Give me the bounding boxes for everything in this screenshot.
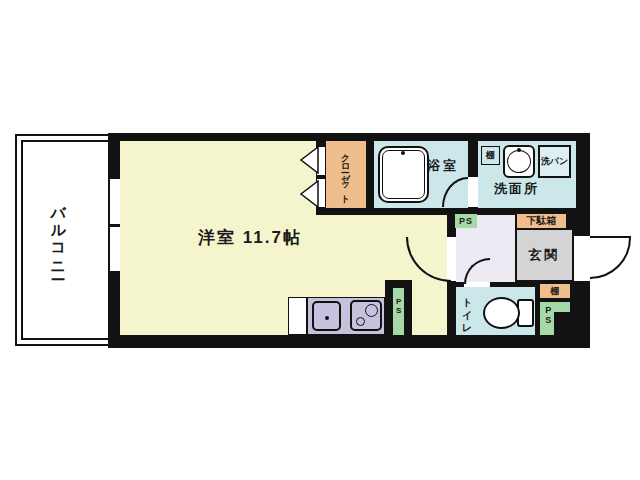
balcony-label: バルコニー: [50, 195, 67, 273]
entrance-shelf-label: 棚: [551, 286, 560, 296]
kitchen-sink-drain-icon: [325, 316, 329, 320]
washing-machine-pan: 洗パン: [538, 145, 571, 178]
bathroom-label: 浴室: [427, 159, 459, 174]
washbasin-bowl: [507, 150, 531, 173]
bathtub-inner: [382, 150, 425, 199]
entrance-shelf: 棚: [540, 284, 570, 298]
bathtub-drain-icon: [401, 151, 405, 155]
entrance: 玄関: [517, 230, 572, 280]
closet-door-track-upper: [316, 146, 326, 176]
stove-burner-small-icon: [356, 317, 365, 326]
shoe-cabinet: 下駄箱: [517, 214, 566, 228]
closet-label: クローゼット: [340, 147, 350, 198]
ps-hall-label: PS: [459, 216, 473, 226]
washroom-label: 洗面所: [494, 182, 539, 197]
bathroom-door-opening: [468, 177, 478, 207]
kitchen-sink: [312, 301, 341, 331]
ps-toilet-notch: [554, 312, 570, 335]
main-room-label-text: 洋室 11.7帖: [198, 228, 302, 248]
entrance-label: 玄関: [529, 248, 561, 263]
toilet-bowl: [483, 297, 520, 329]
entrance-door-arc: [590, 238, 631, 279]
ps-kitchen-label: PS: [394, 297, 403, 315]
toilet-label: トイレ: [461, 291, 473, 328]
main-room-label: 洋室 11.7帖: [150, 228, 350, 248]
main-room-upper: [120, 141, 316, 215]
kitchen-counter: [307, 297, 385, 335]
washbasin-faucet-icon: [517, 148, 521, 152]
washroom-shelf-label: 棚: [486, 150, 495, 160]
floor-plan: バルコニー 洋室 11.7帖 クローゼット 浴室 棚 洗パン 洗面所 PS: [0, 0, 640, 480]
ps-hall: PS: [455, 214, 477, 228]
stove-burner-large-icon: [365, 304, 378, 317]
washroom-shelf: 棚: [481, 146, 500, 165]
kitchen-appliance-space: [288, 297, 307, 335]
entrance-door-opening: [574, 236, 590, 281]
bathtub: [378, 146, 429, 203]
shoe-cabinet-label: 下駄箱: [527, 215, 557, 227]
washbasin: [503, 145, 535, 178]
closet-door-track-lower: [316, 178, 326, 208]
washing-pan-label: 洗パン: [541, 156, 568, 166]
ps-toilet-label: PS: [543, 305, 553, 325]
stove: [350, 300, 382, 331]
